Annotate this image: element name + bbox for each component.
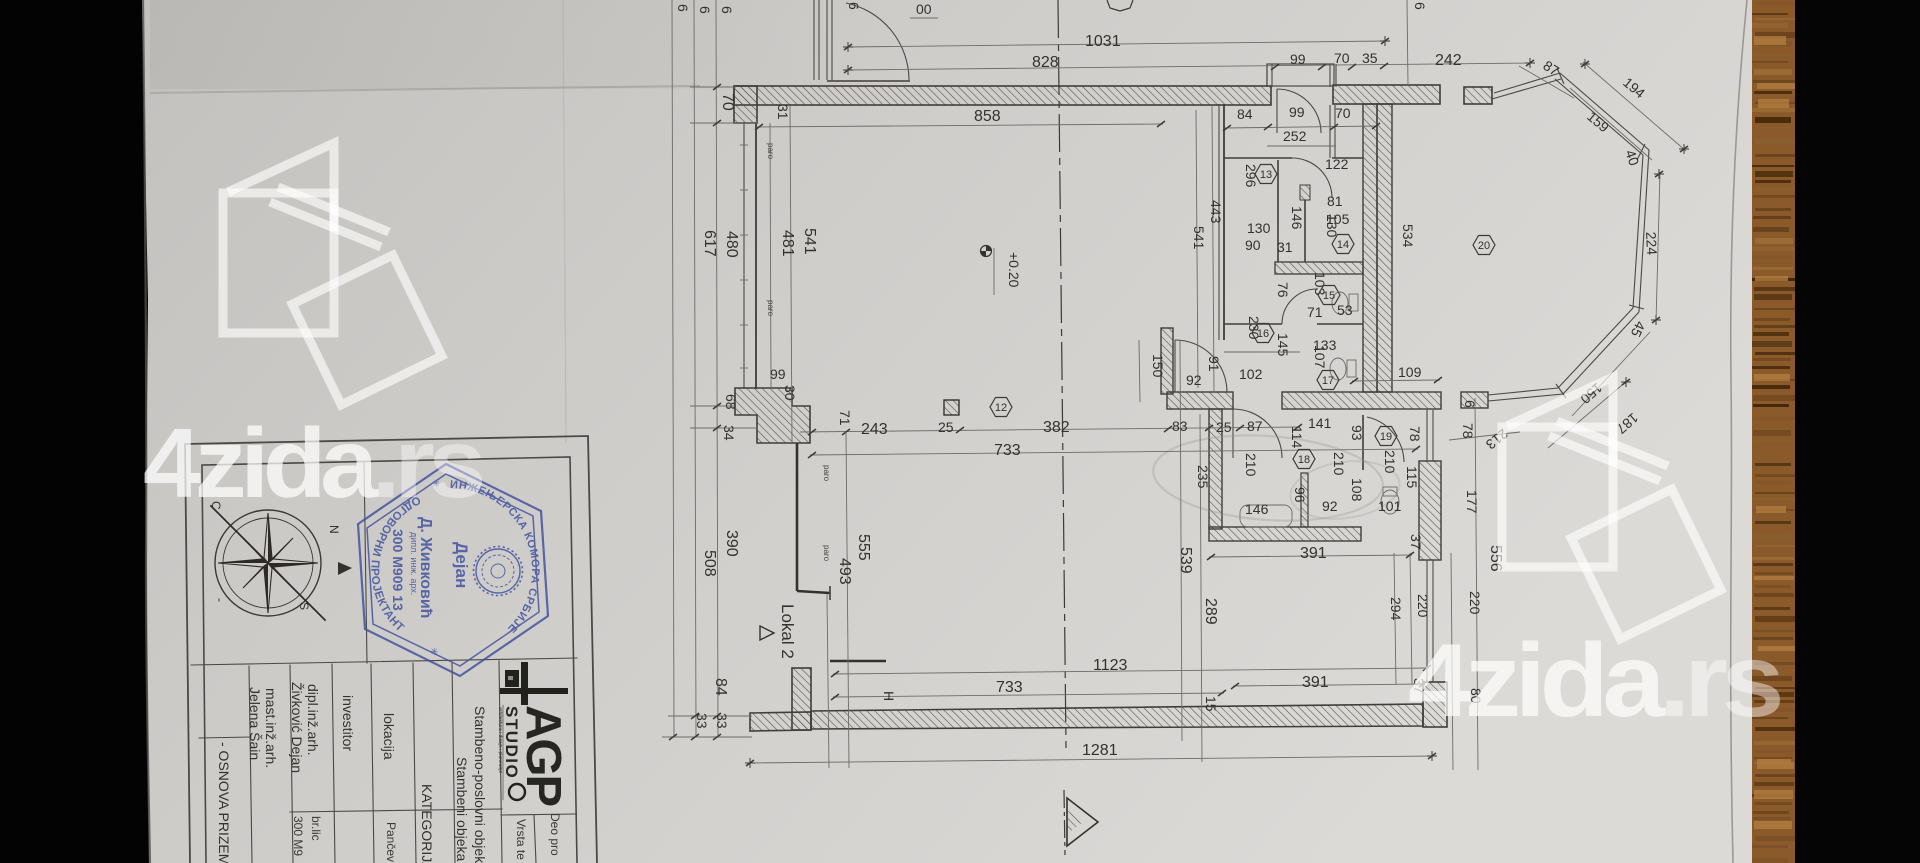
svg-text:828: 828 [1032,54,1059,71]
svg-text:68: 68 [723,394,739,410]
svg-text:541: 541 [1191,226,1207,250]
svg-text:108: 108 [1349,478,1365,502]
svg-text:70: 70 [719,93,736,111]
svg-text:289: 289 [1202,598,1219,625]
svg-text:91: 91 [1206,356,1222,372]
svg-text:300 M9: 300 M9 [291,816,305,856]
svg-text:93: 93 [1349,425,1365,441]
svg-text:6: 6 [719,6,735,14]
svg-text:78: 78 [1460,423,1476,439]
svg-text:17: 17 [1322,375,1334,387]
svg-text:390: 390 [723,530,740,557]
svg-text:6: 6 [1412,2,1428,10]
svg-text:122: 122 [1325,156,1349,172]
svg-text:br.lic: br.lic [309,816,323,841]
svg-text:15: 15 [1203,696,1219,712]
svg-text:220: 220 [1467,591,1483,615]
svg-text:4zida.rs: 4zida.rs [143,408,483,518]
svg-text:31: 31 [775,104,791,120]
svg-text:493: 493 [836,558,853,585]
svg-text:99: 99 [1290,51,1306,67]
svg-text:81: 81 [1327,193,1343,209]
svg-text:115: 115 [1404,466,1420,489]
svg-text:146: 146 [1289,206,1305,230]
svg-text:-: - [213,598,227,602]
svg-text:investitor: investitor [340,695,356,751]
svg-text:S: S [297,602,311,610]
svg-text:20: 20 [1478,240,1490,252]
svg-text:paro: paro [822,545,831,562]
svg-text:210: 210 [1382,450,1398,474]
svg-text:101: 101 [1378,498,1402,514]
svg-text:252: 252 [1283,128,1307,144]
svg-text:109: 109 [1398,364,1422,380]
svg-text:33: 33 [694,713,710,729]
svg-text:25: 25 [1216,419,1232,435]
svg-text:70: 70 [1334,50,1350,66]
svg-text:294: 294 [1388,597,1404,621]
svg-text:1281: 1281 [1082,742,1118,759]
svg-text:Stambeni objeka: Stambeni objeka [454,757,470,862]
svg-text:Дејан: Дејан [452,542,471,588]
svg-text:443: 443 [1208,200,1224,224]
svg-text:Jelena Šain: Jelena Šain [247,687,263,760]
svg-text:STUDIO: STUDIO [502,706,521,779]
svg-text:617: 617 [701,230,718,257]
svg-text:N: N [327,525,341,534]
svg-text:92: 92 [1186,372,1202,388]
svg-text:30: 30 [782,385,798,401]
svg-text:дипл. инж. арх.: дипл. инж. арх. [409,532,419,595]
svg-text:141: 141 [1308,415,1332,431]
svg-text:34: 34 [721,425,737,441]
svg-text:KATEGORIJA B: KATEGORIJA B [419,784,435,863]
svg-text:71: 71 [837,410,853,426]
svg-text:114: 114 [1289,426,1305,449]
svg-text:6: 6 [675,4,691,12]
svg-text:paro: paro [822,465,831,482]
svg-text:242: 242 [1435,52,1462,69]
svg-text:99: 99 [1289,104,1305,120]
svg-text:Vrsta te: Vrsta te [514,819,528,860]
svg-text:6: 6 [846,2,862,10]
svg-text:391: 391 [1302,674,1329,691]
svg-text:Deo pro: Deo pro [548,813,562,856]
svg-text:733: 733 [996,679,1023,696]
svg-text:391: 391 [1300,545,1327,562]
svg-text:224: 224 [1643,231,1660,255]
svg-text:53: 53 [1337,302,1353,318]
svg-text:- OSNOVA PRIZEMLJA: - OSNOVA PRIZEMLJA [216,742,232,863]
svg-text:177: 177 [1464,490,1480,514]
svg-text:00: 00 [916,1,932,17]
svg-text:83: 83 [1172,418,1188,434]
svg-text:14: 14 [1337,239,1349,251]
svg-text:84: 84 [1237,106,1253,122]
svg-text:539: 539 [1177,547,1194,574]
svg-text:733: 733 [994,442,1021,459]
svg-text:481: 481 [779,230,796,257]
svg-text:35: 35 [1362,50,1378,66]
svg-text:99: 99 [770,366,786,382]
svg-text:15: 15 [1323,290,1335,302]
svg-text:4zida.rs: 4zida.rs [1408,623,1780,739]
svg-text:✳: ✳ [430,647,438,658]
svg-text:arhitektura i dizajn i planira: arhitektura i dizajn i planiranje [497,707,503,773]
svg-text:76: 76 [1275,282,1291,298]
svg-text:96: 96 [1292,487,1308,503]
svg-text:382: 382 [1043,419,1070,436]
svg-text:Stambeno-poslovni objek: Stambeno-poslovni objek [472,706,488,863]
svg-text:534: 534 [1400,224,1416,248]
svg-text:480: 480 [723,231,740,258]
svg-text:+0.20: +0.20 [1006,252,1022,288]
svg-text:Živković Dejan: Živković Dejan [289,682,305,773]
svg-text:1123: 1123 [1093,657,1128,674]
svg-text:243: 243 [861,421,888,438]
svg-text:145: 145 [1275,333,1291,357]
svg-text:25: 25 [938,419,954,435]
svg-text:541: 541 [801,228,818,255]
svg-text:858: 858 [974,108,1001,125]
svg-text:18: 18 [1298,454,1310,466]
svg-text:37: 37 [1408,534,1424,550]
svg-text:90: 90 [1245,237,1261,253]
svg-text:235: 235 [1195,465,1211,489]
svg-text:150: 150 [1150,354,1166,378]
svg-text:146: 146 [1245,501,1269,517]
svg-text:13: 13 [1260,169,1272,181]
svg-text:lokacija: lokacija [381,713,397,760]
svg-text:paro: paro [766,143,775,160]
svg-text:1031: 1031 [1085,33,1121,50]
svg-text:70: 70 [1335,105,1351,121]
svg-text:78: 78 [1407,426,1423,442]
svg-text:6: 6 [1462,400,1478,408]
svg-text:87: 87 [1247,418,1263,434]
svg-text:12: 12 [995,402,1007,414]
svg-text:mast.inž.arh.: mast.inž.arh. [263,688,279,768]
svg-text:Pančev: Pančev [384,822,398,862]
svg-text:300 M909 13: 300 M909 13 [390,529,406,611]
svg-text:dipl.inž.arh.: dipl.inž.arh. [305,684,321,756]
svg-text:107: 107 [1312,345,1328,369]
svg-text:84: 84 [712,678,729,696]
svg-text:19: 19 [1380,431,1392,443]
svg-text:102: 102 [1239,366,1263,382]
svg-text:31: 31 [1277,239,1293,255]
svg-text:6: 6 [697,6,713,14]
svg-text:92: 92 [1322,498,1338,514]
svg-text:33: 33 [714,713,730,729]
svg-text:Lokal 2: Lokal 2 [778,604,797,659]
svg-text:508: 508 [701,550,718,577]
svg-text:H: H [881,691,897,701]
svg-text:16: 16 [1257,328,1269,340]
svg-text:71: 71 [1307,304,1323,320]
svg-text:220: 220 [1415,594,1431,618]
svg-text:555: 555 [855,534,872,561]
svg-text:210: 210 [1243,453,1259,477]
svg-text:210: 210 [1331,452,1347,476]
svg-text:paro: paro [766,300,775,317]
svg-text:130: 130 [1247,220,1271,236]
